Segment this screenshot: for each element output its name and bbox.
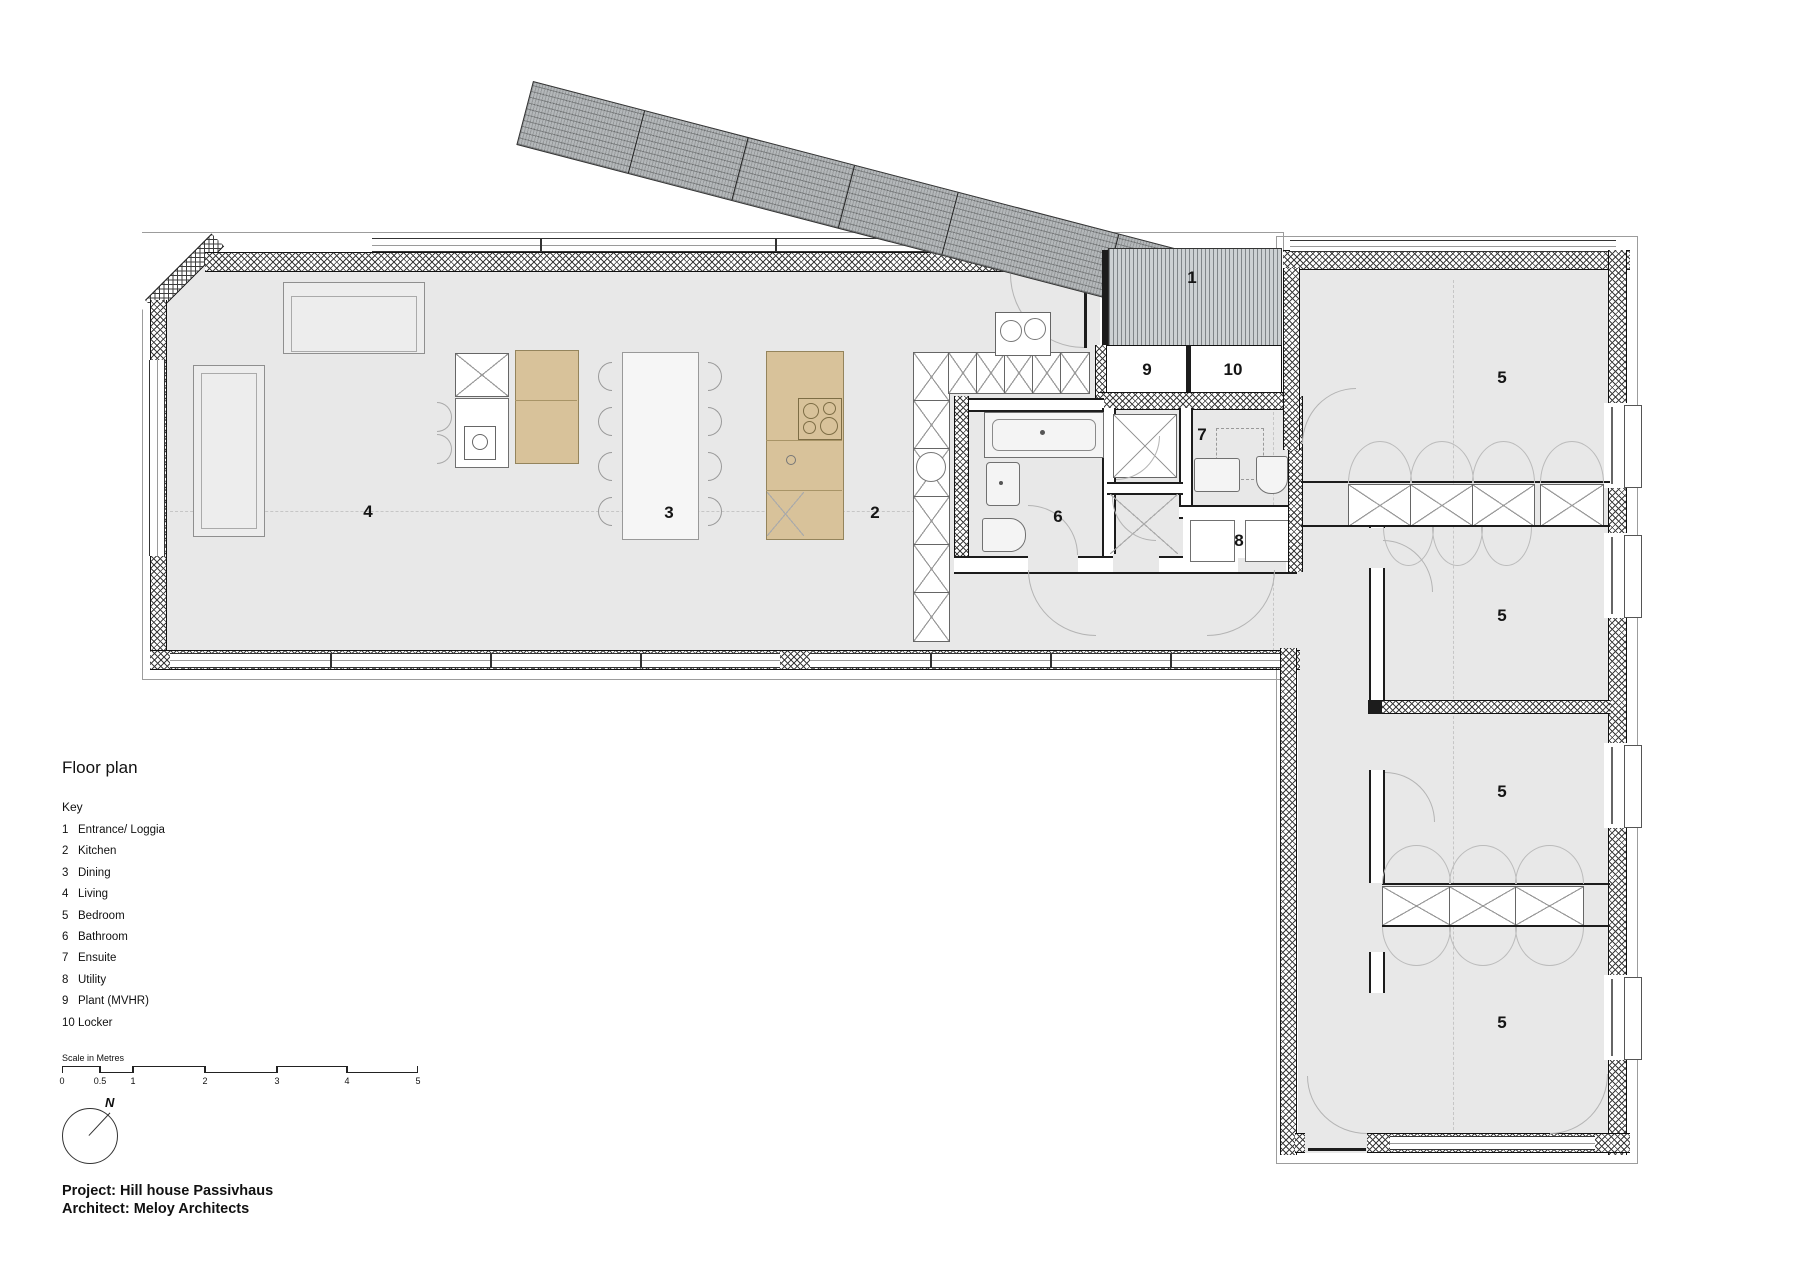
counter-cell — [913, 400, 950, 450]
key-item-label: Ensuite — [78, 948, 116, 969]
room-label-locker: 10 — [1224, 360, 1243, 380]
key-list: 1Entrance/ Loggia 2Kitchen 3Dining 4Livi… — [62, 820, 282, 1034]
room-label-bedroom-1: 5 — [1497, 368, 1506, 388]
window-glazing — [1611, 407, 1613, 484]
counter-cell — [948, 352, 978, 394]
counter-cell — [1004, 352, 1034, 394]
window-frame — [1624, 535, 1642, 618]
wardrobe — [1348, 484, 1412, 527]
key-item-label: Bedroom — [78, 906, 125, 927]
clerestory-window-band — [1290, 240, 1616, 252]
key-item: 1Entrance/ Loggia — [62, 820, 282, 841]
window-frame — [1624, 977, 1642, 1060]
window-mullion — [1170, 653, 1172, 668]
wall-below-plant — [1098, 392, 1300, 410]
counter-cell — [1032, 352, 1062, 394]
room-label-entrance: 1 — [1187, 268, 1196, 288]
scale-segment — [205, 1066, 277, 1073]
key-item: 9Plant (MVHR) — [62, 991, 282, 1012]
wall-cap — [1368, 700, 1382, 714]
key-item-num: 1 — [62, 820, 68, 841]
toilet — [982, 518, 1026, 552]
counter-cell — [913, 592, 950, 642]
key-item: 3Dining — [62, 863, 282, 884]
canopy-joint — [628, 111, 645, 173]
window-mullion — [640, 653, 642, 668]
window-left-living — [149, 360, 165, 556]
ensuite-basin — [1194, 458, 1240, 492]
wall-plant-locker-divider — [1186, 345, 1191, 394]
sofa-seat — [201, 373, 257, 529]
wardrobe — [1449, 886, 1517, 926]
architect-line: Architect: Meloy Architects — [62, 1200, 249, 1218]
key-item: 7Ensuite — [62, 948, 282, 969]
island-line — [766, 440, 842, 441]
counter-cell — [913, 352, 950, 402]
sofa-seat — [291, 296, 417, 352]
hob-burner — [823, 402, 836, 415]
room-label-kitchen: 2 — [870, 503, 879, 523]
window-frame — [1624, 745, 1642, 828]
key-heading: Key — [62, 800, 83, 814]
wall-bed2-bed3 — [1382, 700, 1610, 714]
wall-left-bedroom1 — [1283, 268, 1300, 450]
wardrobe — [1382, 886, 1451, 926]
scale-segment — [277, 1066, 347, 1073]
window-mullion — [930, 653, 932, 668]
canopy-joint — [731, 138, 748, 200]
door-leaf — [1308, 1148, 1366, 1151]
counter-cell — [976, 352, 1006, 394]
key-item-num: 7 — [62, 948, 68, 969]
scale-tick-label: 4 — [344, 1076, 349, 1086]
scale-numbers: 0 0.5 1 2 3 4 5 — [62, 1076, 418, 1088]
wall-corridor — [1369, 770, 1385, 883]
sink-bowl — [1000, 320, 1022, 342]
key-item-label: Locker — [78, 1013, 113, 1034]
wall-bath-top — [954, 398, 1104, 412]
wardrobe — [1515, 886, 1584, 926]
scale-bar-label: Scale in Metres — [62, 1053, 124, 1063]
canopy-joint — [838, 166, 855, 228]
window-glazing — [1611, 537, 1613, 614]
page-title: Floor plan — [62, 758, 138, 778]
window-band-living-south — [170, 653, 780, 668]
window-mullion — [490, 653, 492, 668]
tall-unit — [515, 350, 579, 464]
wardrobe — [1410, 484, 1474, 527]
kitchen-sink — [916, 452, 946, 482]
floor-plan-sheet: 1 9 10 6 7 — [0, 0, 1800, 1273]
hob-burner — [820, 417, 838, 435]
washer — [1190, 520, 1235, 562]
hob-burner — [803, 403, 819, 419]
room-label-bedroom-2: 5 — [1497, 606, 1506, 626]
scale-tick-label: 0 — [59, 1076, 64, 1086]
deck-side-wall — [1102, 250, 1108, 347]
room-label-plant: 9 — [1142, 360, 1151, 380]
key-item-label: Entrance/ Loggia — [78, 820, 165, 841]
window-band-bottom — [1390, 1136, 1595, 1150]
counter-cell — [455, 353, 509, 397]
north-arrow: N — [55, 1095, 135, 1170]
bathtub-inner — [992, 419, 1096, 451]
counter-cell — [913, 544, 950, 594]
wall-top-bedroom-wing — [1283, 250, 1630, 270]
window-frame — [1624, 405, 1642, 488]
entrance-loggia-deck — [1108, 248, 1282, 349]
island-dishwasher — [767, 492, 804, 536]
room-label-ensuite: 7 — [1197, 425, 1206, 445]
window-mullion — [1050, 653, 1052, 668]
dining-table — [622, 352, 699, 540]
window-mullion — [540, 238, 542, 252]
wall-left-bedroom-wing — [1280, 648, 1297, 1155]
key-item-label: Dining — [78, 863, 111, 884]
wardrobe — [1472, 484, 1535, 527]
wall-bath-left — [954, 396, 969, 572]
window-mullion — [330, 653, 332, 668]
scale-segment — [62, 1066, 100, 1073]
room-label-utility: 8 — [1234, 531, 1243, 551]
scale-segment — [347, 1066, 418, 1073]
scale-tick-label: 1 — [130, 1076, 135, 1086]
oven-dial — [472, 434, 488, 450]
dryer — [1245, 520, 1290, 562]
basin-tap — [999, 481, 1003, 485]
key-item-num: 9 — [62, 991, 68, 1012]
key-item: 6Bathroom — [62, 927, 282, 948]
bathtub-drain — [1040, 430, 1045, 435]
scale-tick-label: 3 — [274, 1076, 279, 1086]
wardrobe — [1540, 484, 1604, 527]
counter-cell — [913, 496, 950, 546]
room-plant-locker — [1103, 345, 1282, 396]
key-item-num: 6 — [62, 927, 68, 948]
scale-bar: 0 0.5 1 2 3 4 5 — [62, 1066, 418, 1090]
window-glazing — [1611, 747, 1613, 824]
project-line: Project: Hill house Passivhaus — [62, 1182, 273, 1200]
key-item: 10Locker — [62, 1013, 282, 1034]
island-line — [766, 490, 842, 491]
window-band-hall-south — [810, 653, 1280, 668]
wall-corridor — [1369, 952, 1385, 993]
hob-burner — [803, 421, 816, 434]
key-item-label: Kitchen — [78, 841, 116, 862]
key-item-num: 3 — [62, 863, 68, 884]
scale-segment — [133, 1066, 205, 1073]
window-glazing — [1611, 979, 1613, 1056]
key-item: 4Living — [62, 884, 282, 905]
door-gap — [1113, 554, 1159, 572]
basin — [986, 462, 1020, 506]
canopy-joint — [941, 193, 958, 255]
north-circle — [62, 1108, 118, 1164]
window-mullion — [775, 238, 777, 252]
scale-tick-label: 0.5 — [94, 1076, 107, 1086]
room-label-bedroom-3: 5 — [1497, 782, 1506, 802]
ensuite-toilet — [1256, 456, 1288, 494]
island-knob — [786, 455, 796, 465]
counter-cell — [1060, 352, 1090, 394]
key-item: 5Bedroom — [62, 906, 282, 927]
wall-shower-right — [1179, 408, 1193, 515]
sink-bowl — [1024, 318, 1046, 340]
room-label-bathroom: 6 — [1053, 507, 1062, 527]
north-label: N — [105, 1095, 114, 1110]
scale-tick-label: 5 — [415, 1076, 420, 1086]
room-label-bedroom-4: 5 — [1497, 1013, 1506, 1033]
key-item-num: 5 — [62, 906, 68, 927]
key-item: 2Kitchen — [62, 841, 282, 862]
tall-unit-line — [515, 400, 577, 401]
key-item: 8Utility — [62, 970, 282, 991]
room-label-dining: 3 — [664, 503, 673, 523]
key-item-label: Plant (MVHR) — [78, 991, 149, 1012]
key-item-num: 2 — [62, 841, 68, 862]
key-item-num: 8 — [62, 970, 68, 991]
key-item-num: 10 — [62, 1013, 75, 1034]
room-label-living: 4 — [363, 502, 372, 522]
key-item-label: Utility — [78, 970, 106, 991]
key-item-label: Bathroom — [78, 927, 128, 948]
key-item-label: Living — [78, 884, 108, 905]
scale-segment — [100, 1066, 133, 1073]
key-item-num: 4 — [62, 884, 68, 905]
scale-tick-label: 2 — [202, 1076, 207, 1086]
